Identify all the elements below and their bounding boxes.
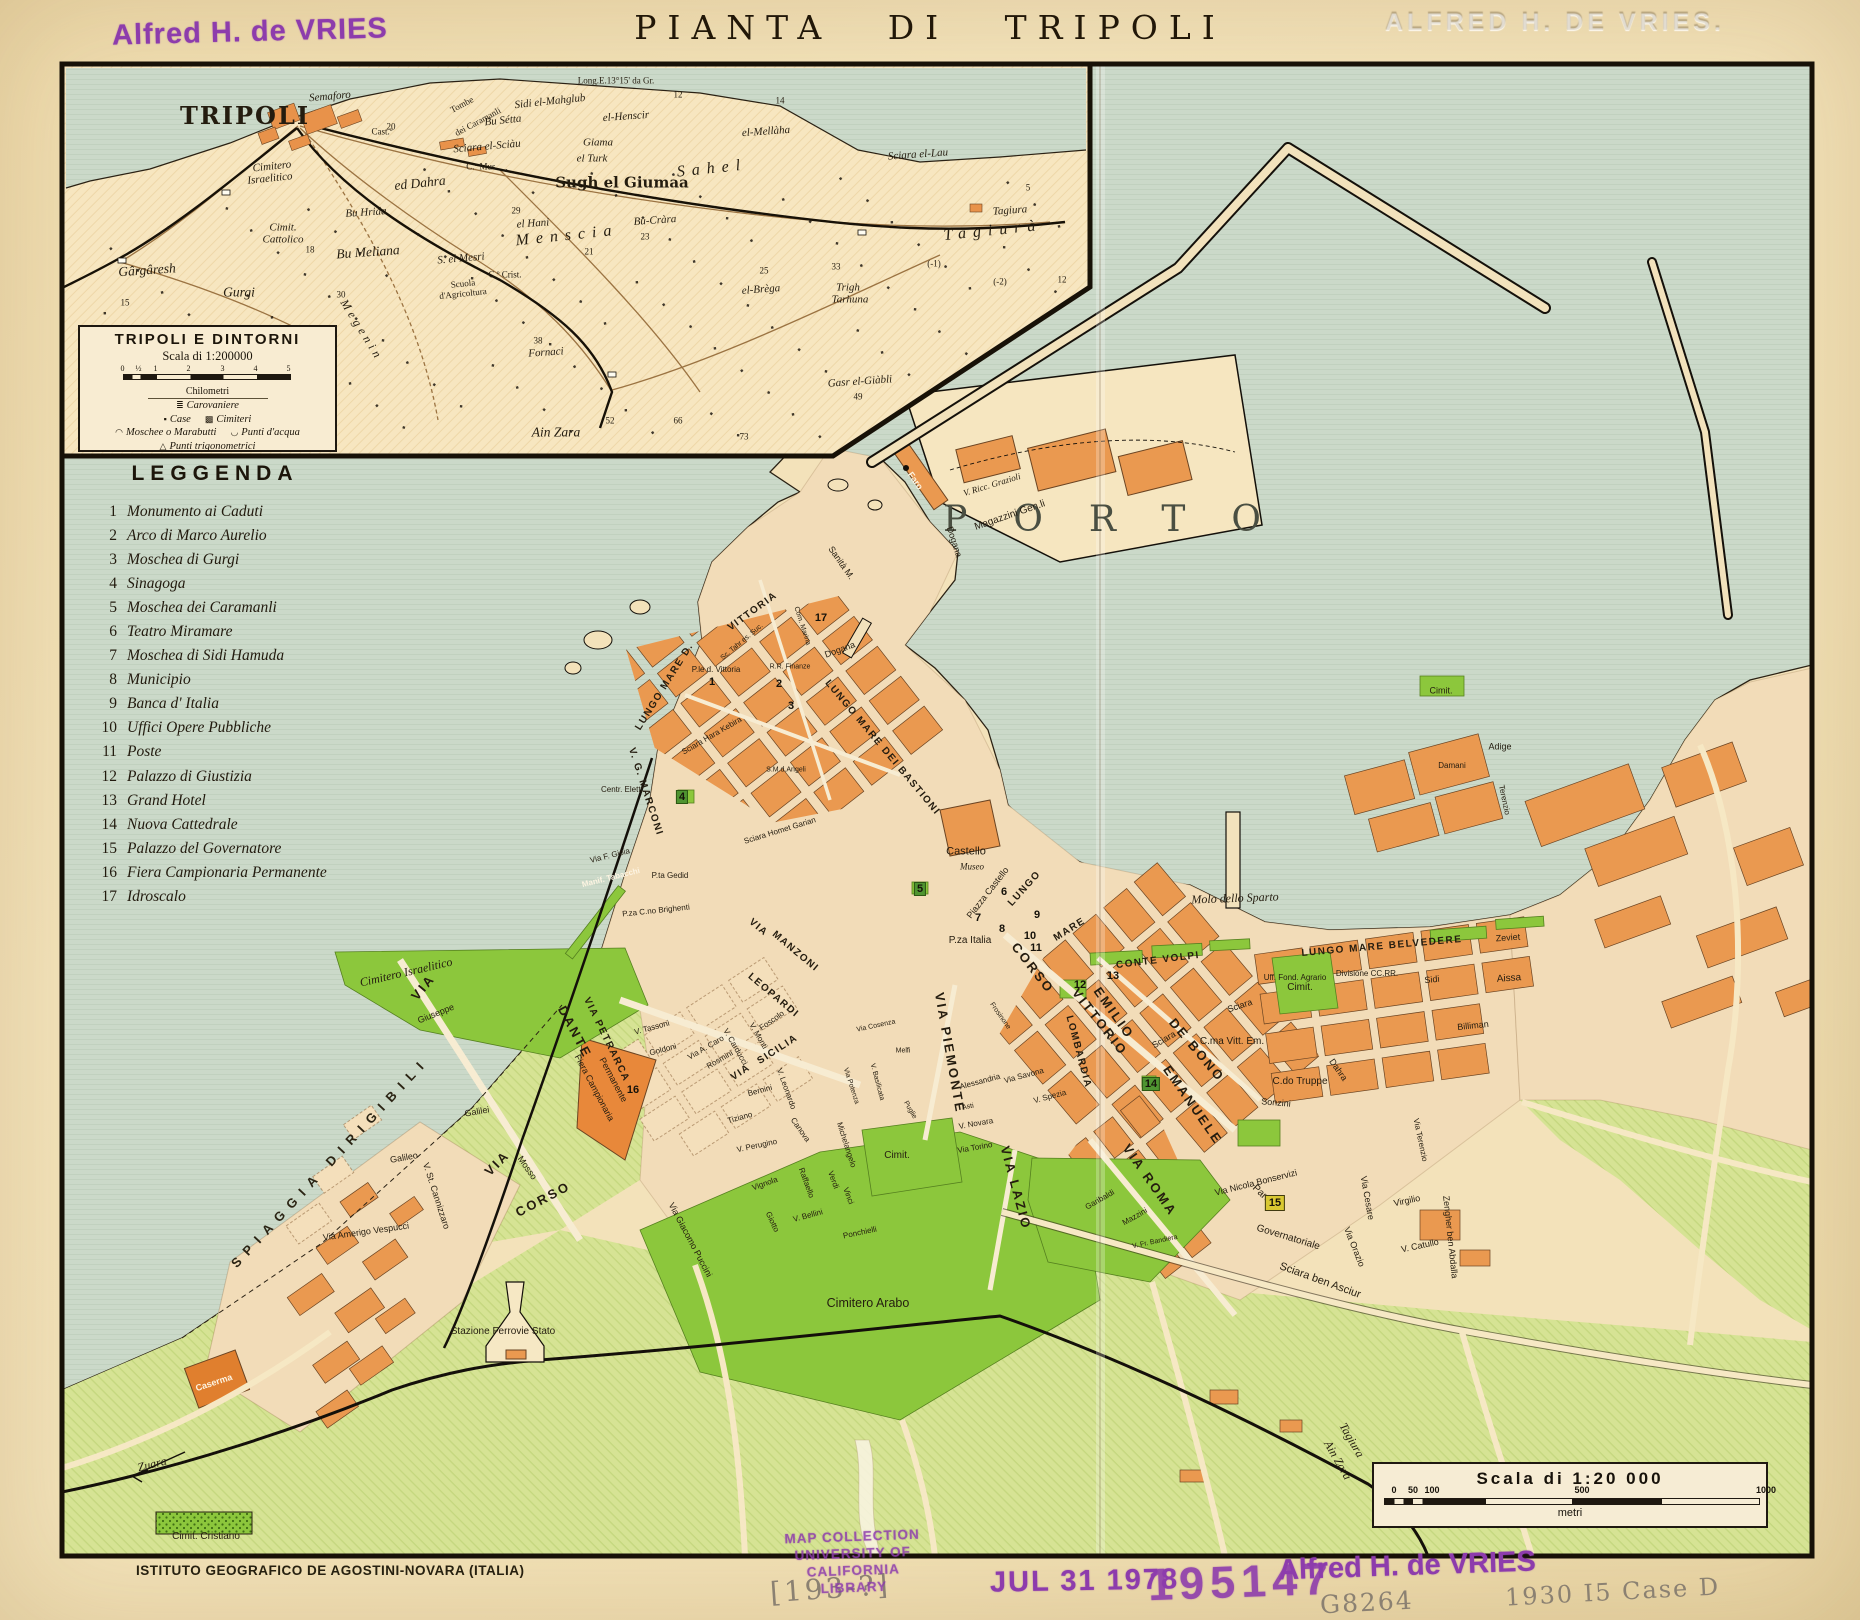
map-label: Vinci [841,1187,854,1206]
map-label: Sidi [1424,975,1440,986]
map-label: Tagiura [992,204,1027,217]
date-stamp: JUL 31 1978 [990,1563,1180,1599]
legend-item: 15Palazzo del Governatore [90,837,460,861]
publisher-imprint: ISTITUTO GEOGRAFICO DE AGOSTINI-NOVARA (… [136,1563,525,1578]
map-label: Molo dello Sparto [1191,890,1279,905]
map-label: Via Torino [957,1141,993,1155]
map-label: 49 [854,393,863,402]
map-label: Adige [1488,743,1511,752]
legend-item: 13Grand Hotel [90,789,460,813]
map-label: 5 [1026,184,1031,193]
scale-tick: 50 [1408,1485,1418,1495]
map-label: Sidi el-Mahglub [514,93,586,111]
legend-item: 14Nuova Cattedrale [90,813,460,837]
map-label: Sciara [1226,998,1253,1014]
map-label: Via Giacomo Puccini [667,1201,714,1278]
map-label: Rosmini [705,1049,734,1070]
map-label: Cimit. [1430,687,1453,696]
map-label: Cimit. [1287,983,1313,993]
map-label: Puglie [902,1100,918,1120]
map-label: Semaforo [309,90,352,105]
scale-unit: metri [1374,1507,1766,1519]
map-label: Cimitero Arabo [827,1297,910,1310]
map-label: V. St. Cannizzaro [421,1162,451,1231]
map-label: Zengher ben Abdalla [1441,1195,1459,1279]
legend-item: 11Poste [90,740,460,764]
poi-marker: 8 [999,923,1005,935]
legend-item: 7Moschea di Sidi Hamuda [90,644,460,668]
map-label: Castello [946,847,986,858]
poi-marker: 15 [1265,1195,1285,1211]
map-label: Goldoni [649,1043,678,1058]
scale-tick: 0 [1391,1485,1396,1495]
scale-tick: 4 [254,364,258,373]
map-label: Ain Zara [532,425,580,439]
map-label: 23 [641,233,650,242]
symbol-row: ≣Carovaniere [80,399,335,413]
map-label: Fornaci [528,346,564,359]
map-label: Sciara el-Sciàu [453,139,521,156]
map-label: S. el Mesri [437,251,485,266]
map-label: V. Spezia [1033,1089,1067,1105]
poi-marker: 6 [1001,886,1007,898]
map-label: 66 [674,417,683,426]
poi-marker: 11 [1030,942,1042,954]
map-label: el-Henscir [602,110,649,124]
map-label: Via Potenza [842,1067,860,1105]
map-label: Governatoriale [1255,1224,1321,1253]
map-label: Michelangelo [835,1121,857,1168]
symbol-entry: ▪Case [164,413,191,427]
map-label: (-2) [993,278,1007,287]
map-label: Via F. Gioia [589,847,630,865]
map-label: Via Savona [1003,1067,1044,1085]
map-label: Giotto [764,1211,780,1234]
map-label: Zeviet [1495,933,1520,944]
map-label: CONTE VOLPI [1116,951,1201,971]
legend-item: 10Uffici Opere Pubbliche [90,716,460,740]
embossed-stamp: ALFRED H. DE VRIES. [1385,8,1725,37]
map-label: 12 [1058,276,1067,285]
map-label: P.za C.no Brighenti [622,903,690,918]
map-label: Caserma [195,1373,234,1393]
poi-marker: 10 [1024,930,1036,942]
legend-list: 1Monumento ai Caduti2Arco di Marco Aurel… [90,500,460,909]
map-label: 15 [121,299,130,308]
map-label: LUNGO MARE BELVEDERE [1301,935,1463,959]
map-label: Cimit. Cristiano [172,1532,240,1542]
scale-ticks: 0501005001000 [1384,1485,1758,1495]
legend-item: 2Arco di Marco Aurelio [90,524,460,548]
map-label: MANZONI [770,930,820,974]
map-label: VIA [482,1148,512,1178]
map-label: 12 [674,91,683,100]
map-label: Cattolico [263,235,304,246]
map-label: Raffaello [797,1167,815,1199]
map-label: 25 [760,267,769,276]
map-label: Uff. Fond. Agrario [1264,974,1327,982]
map-label: Divisione CC.RR. [1336,970,1398,978]
inset-scale-bar: 0½12345 [123,364,293,386]
map-label: Damani [1438,762,1466,770]
map-label: Sanità M. [826,545,855,581]
map-label: Vignola [751,1176,779,1193]
symbol-entry: ◠Moschee o Marabutti [115,426,216,440]
map-label: CORSO [513,1179,572,1219]
map-label: C.º Mus. [466,163,498,172]
scale-tick: ½ [136,364,142,373]
map-label: LUNGO MARE DEI BASTIONI [823,679,942,818]
map-label: V. Tassoni [634,1019,671,1036]
map-label: P.ta Gedid [652,872,689,880]
map-label: 29 [512,207,521,216]
map-label: Sc. Tahr es. Suc. [720,622,765,661]
poi-marker: 14 [1142,1077,1160,1091]
legend-item: 9Banca d' Italia [90,692,460,716]
map-label: LUNGO [1007,869,1044,908]
map-label: Bu Sétta [484,114,522,129]
map-label: d'Agricoltura [439,287,487,301]
map-label: LOMBARDIA [1064,1015,1093,1090]
map-label: 38 [534,337,543,346]
map-label: Bu Meliana [336,243,400,261]
poi-marker: 17 [815,612,827,624]
map-label: VIA LAZIO [999,1145,1034,1232]
symbol-row: ▪Case▩Cimiteri [80,413,335,427]
map-label: el Turk [577,154,608,165]
map-label: V. Fr. Bandiera [1132,1234,1178,1250]
map-label: Aissa [1496,973,1521,985]
map-label: 73 [740,433,749,442]
legend-item: 4Sinagoga [90,572,460,596]
map-label: Garibaldi [1084,1189,1116,1212]
poi-marker: 7 [975,912,981,924]
map-label: Tarhuna [832,295,869,306]
map-label: Tagiurà [943,218,1043,244]
map-label: Dahra [1327,1057,1348,1082]
poi-marker: 12 [1074,979,1086,991]
poi-marker: 3 [788,700,794,712]
legend-item: 3Moschea di Gurgi [90,548,460,572]
map-label: 33 [832,263,841,272]
map-label: Zuara [136,1455,167,1474]
map-label: Virgilio [1393,1194,1421,1208]
map-label: Trigh [836,283,860,294]
map-label: C.ma Vitt. Em. [1200,1037,1264,1047]
symbol-entry: ▩Cimiteri [205,413,252,427]
poi-marker: 5 [914,882,926,896]
symbol-row: △Punti trigonometrici [80,440,335,454]
map-label: V. Catullo [1400,1238,1439,1255]
map-label: Via Amerigo Vespucci [322,1221,409,1242]
map-label: Sciara Hara Kebira [681,716,744,757]
map-label: C.do Truppe [1272,1077,1327,1087]
poi-marker: 2 [776,678,782,690]
map-label: LUNGO MARE D. [634,642,696,733]
scale-tick: 0 [121,364,125,373]
legend-item: 5Moschea dei Caramanli [90,596,460,620]
map-label: Long.E.13°15' da Gr. [578,77,654,86]
map-label: Cimitero Israelitico [359,956,454,989]
map-label: TRIPOLI [180,104,310,128]
map-label: Mosso [516,1155,539,1182]
inset-scale-unit: Chilometri [148,386,268,399]
map-label: 30 [337,291,346,300]
symbol-glyph: ≣ [176,400,184,410]
map-label: V. Bellini [792,1208,823,1224]
map-label: Sugh el Giumaa [555,176,689,191]
scale-tick: 100 [1424,1485,1439,1495]
map-label: Gurgi [223,285,255,299]
map-label: Manif. Tabacchi [581,867,641,889]
map-label: Sahel [676,157,748,180]
map-label: Dogana [824,640,857,659]
map-label: Frosinone [988,1001,1012,1031]
symbol-entry: △Punti trigonometrici [160,440,256,454]
map-label: el-Brèga [741,283,780,297]
symbol-glyph: ◡ [230,427,238,437]
scale-tick: 500 [1574,1485,1589,1495]
poi-marker: 16 [627,1084,639,1096]
poi-marker: 13 [1107,970,1119,982]
map-label: Foscolo [758,1010,786,1033]
map-sheet: PORTOMolo dello SpartoLUNGO MARE D.VITTO… [0,0,1860,1620]
inset-info-box: TRIPOLI E DINTORNI Scala di 1:200000 0½1… [78,325,337,452]
map-label: Cimit. [884,1151,910,1161]
symbol-glyph: ◠ [115,427,123,437]
poi-marker: 9 [1034,909,1040,921]
map-label: V. Basilicata [869,1063,886,1101]
legend-title: LEGGENDA [90,462,340,486]
map-label: C.º Crist. [488,271,521,280]
map-label: 20 [387,123,396,132]
scale-tick: 1000 [1756,1485,1776,1495]
map-label: MARE [1052,916,1087,943]
poi-marker: 1 [709,676,715,688]
scale-box: Scala di 1:20 000 0501005001000 metri [1372,1462,1768,1528]
map-label: Sciara [1151,1030,1178,1051]
map-label: Tiziano [727,1111,754,1125]
map-label: R.R. Finanze [770,664,811,671]
map-label: Asti [962,1103,975,1112]
map-label: Gasr el-Giàbli [827,374,892,389]
map-label: Mazzini [1121,1207,1148,1227]
legend-item: 12Palazzo di Giustizia [90,765,460,789]
map-label: Stazione Ferrovie Stato [451,1327,556,1337]
scale-tick: 5 [287,364,291,373]
inset-scale: Scala di 1:200000 [80,349,335,364]
map-label: Via Orazio [1342,1226,1366,1268]
pencil-callnumber: G8264 [1319,1586,1414,1620]
legend-item: 16Fiera Campionaria Permanente [90,861,460,885]
symbol-entry: ≣Carovaniere [176,399,239,413]
map-label: P.le d. Vittoria [692,666,741,674]
map-label: Centr. Elettr. [601,786,645,794]
legend-item: 8Municipio [90,668,460,692]
scale-tick: 1 [154,364,158,373]
scale-tick: 3 [221,364,225,373]
map-label: P.za Italia [949,936,992,946]
legend-item: 17Idroscalo [90,885,460,909]
map-label: (-1) [927,260,941,269]
map-label: Faro [906,470,925,491]
map-label: Billiman [1457,1020,1489,1032]
map-label: S.M.d.Angeli [766,767,806,774]
map-label: VIA ROMA [1120,1142,1179,1219]
map-label: V. Leonardo [775,1067,797,1110]
map-label: 52 [606,417,615,426]
map-label: ed Dahra [394,174,447,193]
map-label: Galileo [389,1151,418,1165]
inset-title: TRIPOLI E DINTORNI [80,331,335,348]
map-label: Sciara Homet Garian [743,816,817,845]
symbol-glyph: △ [160,441,167,451]
map-label: Israelitico [247,171,293,187]
symbol-glyph: ▪ [164,414,167,424]
legend-panel: LEGGENDA 1Monumento ai Caduti2Arco di Ma… [90,462,460,909]
legend-item: 6Teatro Miramare [90,620,460,644]
map-label: Via Terenzio [1412,1118,1429,1162]
map-label: 14 [776,97,785,106]
map-label: VIA PIEMONTE [933,991,967,1114]
map-label: Sciara ben Asciur [1278,1261,1362,1301]
scale-tick: 2 [187,364,191,373]
symbol-row: ◠Moschee o Marabutti◡Punti d'acqua [80,426,335,440]
map-label: V. Novara [958,1117,994,1131]
map-label: V. Perugino [736,1138,778,1154]
map-label: 18 [306,246,315,255]
map-label: Melfi [896,1048,911,1055]
legend-item: 1Monumento ai Caduti [90,500,460,524]
map-label: VIA [747,917,770,938]
map-label: Alessandria [959,1073,1001,1092]
map-label: Gârgâresh [118,261,176,278]
map-label: Tombe [449,95,475,115]
scale-bar [1384,1498,1760,1505]
map-label: Via Cosenza [856,1018,896,1033]
map-label: Galilei [464,1105,490,1118]
map-label: Verdi [826,1170,840,1190]
map-label: Terenzio [1497,784,1511,815]
map-label: Sonzini [1261,1097,1291,1109]
map-label: el-Mellàha [742,125,791,139]
symbol-entry: ◡Punti d'acqua [230,426,299,440]
map-label: Bernini [747,1084,773,1098]
map-label: 21 [585,248,594,257]
map-label: Giuseppe [416,1003,455,1026]
library-stamp: MAP COLLECTION UNIVERSITY OF CALIFORNIA … [747,1524,959,1599]
map-label: Via Cesare [1359,1175,1376,1220]
map-label: Museo [960,863,984,872]
map-label: Cimit. [269,223,296,234]
map-label: Sciara el-Lau [888,147,949,162]
map-label: V. Ricc. Grazioli [962,472,1021,498]
inset-symbol-legend: ≣Carovaniere▪Case▩Cimiteri◠Moschee o Mar… [80,399,335,453]
map-label: Giama [583,138,613,149]
poi-marker: 4 [676,790,688,804]
map-label: Bu-Cràra [633,214,676,228]
map-label: Megenin [338,297,385,363]
symbol-glyph: ▩ [205,414,214,424]
map-label: Com. Marina [792,606,811,646]
map-label: Bu Hrida [345,206,387,220]
map-label: Canova [789,1116,811,1143]
map-label: Ponchielli [842,1226,877,1241]
